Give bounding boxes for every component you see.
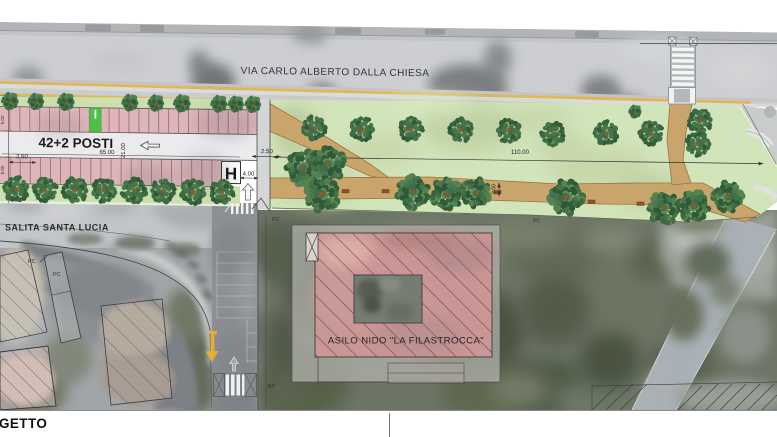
svg-text:3.00: 3.00 bbox=[492, 184, 498, 194]
svg-text:GETTO: GETTO bbox=[0, 416, 47, 431]
svg-text:PC: PC bbox=[272, 217, 280, 223]
svg-text:2.50: 2.50 bbox=[16, 154, 28, 160]
svg-text:AP: AP bbox=[268, 384, 276, 390]
svg-text:110.00: 110.00 bbox=[511, 150, 530, 156]
svg-text:5.00: 5.00 bbox=[0, 165, 5, 174]
svg-text:42+2 POSTI: 42+2 POSTI bbox=[39, 135, 114, 151]
svg-text:PC: PC bbox=[533, 219, 541, 225]
svg-text:PC: PC bbox=[53, 272, 61, 278]
svg-text:4.00: 4.00 bbox=[243, 171, 255, 177]
svg-text:SALITA SANTA LUCIA: SALITA SANTA LUCIA bbox=[5, 223, 109, 233]
svg-text:5.00: 5.00 bbox=[0, 115, 5, 124]
svg-text:PC: PC bbox=[28, 259, 36, 265]
svg-text:ASILO NIDO "LA FILASTROCCA": ASILO NIDO "LA FILASTROCCA" bbox=[328, 336, 484, 347]
svg-text:21.00: 21.00 bbox=[121, 142, 127, 158]
svg-text:2.50: 2.50 bbox=[261, 149, 273, 155]
